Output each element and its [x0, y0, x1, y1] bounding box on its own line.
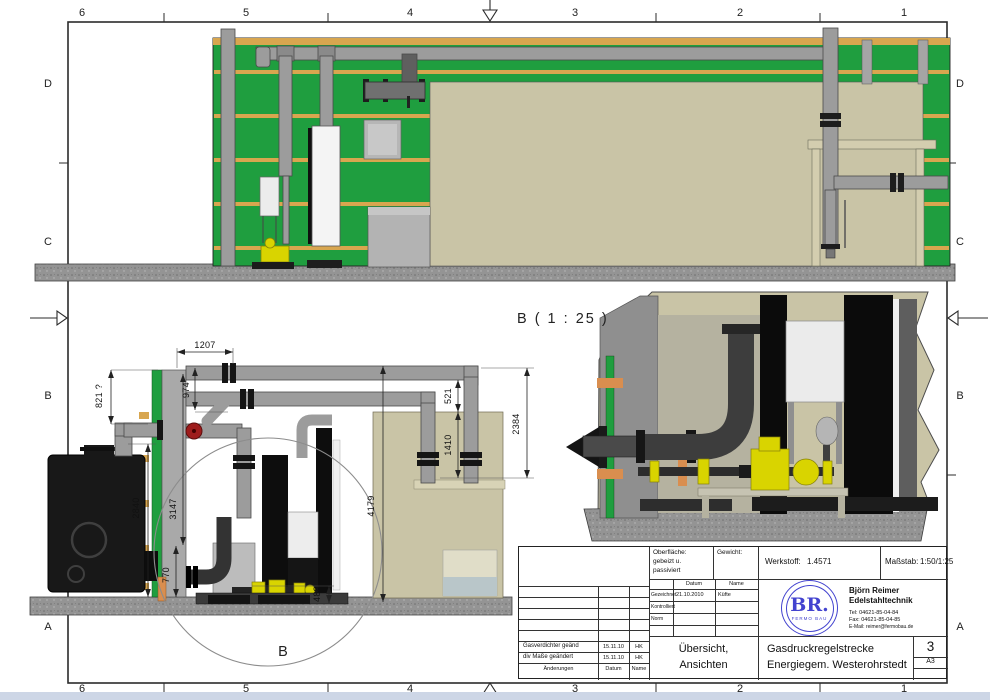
ground-slab: [35, 264, 955, 281]
flanged-valve: [365, 82, 425, 99]
company-name: Edelstahltechnik: [849, 596, 913, 605]
surface-value: passiviert: [653, 567, 680, 574]
ruler-letter: D: [956, 78, 964, 90]
ruler-number: 2: [737, 7, 743, 19]
dimension-label: 2840: [131, 497, 141, 518]
doc-title: Ansichten: [649, 659, 758, 671]
ruler-letter: A: [956, 621, 963, 633]
interior-wall: [430, 82, 923, 266]
company-fax: Fax: 04621-85-04-85: [849, 617, 900, 623]
revision-desc: Gasverdichter geänd: [523, 643, 579, 649]
revision-name: HK: [629, 655, 649, 661]
revision-date: 15.11.10: [598, 644, 629, 650]
gray-box: [368, 207, 430, 267]
wall-cabinet: [312, 126, 340, 246]
sheet-number: 3: [913, 639, 948, 654]
ruler-letter: B: [44, 390, 51, 402]
ruler-number: 5: [243, 7, 249, 19]
dimension-label: 2384: [511, 413, 521, 434]
desktop-edge-strip: [0, 692, 990, 700]
scale-value: 1:50/1:25: [920, 557, 953, 566]
company-tel: Tel: 04621-85-04-84: [849, 610, 898, 616]
control-cabinet: [786, 321, 844, 402]
sign-drawn-date: 21.10.2010: [676, 592, 704, 598]
ruler-number: 1: [901, 7, 907, 19]
material-label: Werkstoff:: [765, 557, 801, 566]
revision-footer: Name: [629, 666, 649, 672]
ruler-number: 4: [407, 7, 413, 19]
title-block: Oberfläche: gebeizt u. passiviert Gewich…: [518, 546, 947, 679]
ruler-number: 6: [79, 7, 85, 19]
dimension-label: 488: [312, 586, 322, 602]
scale-label: Maßstab:: [885, 557, 918, 566]
ruler-letter: A: [44, 621, 51, 633]
surface-label: Oberfläche:: [653, 549, 687, 556]
sign-row-norm: Norm: [651, 616, 663, 622]
detail-view-label: B ( 1 : 25 ): [517, 311, 609, 327]
drawing-sheet: 6 5 4 3 2 1 6 5 4 3 2 1 D C B A D C B A …: [0, 0, 990, 700]
sign-col-date: Datum: [673, 581, 715, 587]
revision-name: HK: [629, 644, 649, 650]
dimension-label: 521: [443, 388, 453, 404]
logo-subtext: FERMO BAU: [792, 616, 828, 621]
dimension-label: 3147: [168, 498, 178, 519]
ruler-letter: D: [44, 78, 52, 90]
revision-footer: Änderungen: [519, 666, 598, 672]
dimension-label: 770: [161, 567, 171, 583]
dimension-label: 1410: [443, 434, 453, 455]
weight-label: Gewicht:: [717, 549, 742, 556]
project-title: Energiegem. Westerohrstedt: [767, 659, 907, 671]
sign-row-drawn: Gezeichnet: [651, 592, 676, 598]
revision-date: 15.11.10: [598, 655, 629, 661]
company-email: E-Mail: reimer@fermobau.de: [849, 624, 913, 630]
gas-tank: [48, 445, 158, 592]
company-name: Björn Reimer: [849, 586, 899, 595]
dimension-label: 4179: [366, 495, 376, 516]
doc-title: Übersicht,: [649, 643, 758, 655]
regulator-skid: [158, 420, 348, 604]
sign-drawn-name: Küfte: [718, 592, 731, 598]
ruler-letter: C: [956, 236, 964, 248]
side-elevation-view: [30, 348, 534, 666]
surface-value: gebeizt u.: [653, 558, 681, 565]
dimension-label: 974: [181, 382, 191, 398]
ruler-letter: C: [44, 236, 52, 248]
ruler-letter: B: [956, 390, 963, 402]
material-value: 1.4571: [807, 557, 831, 566]
dimension-label: 1207: [194, 340, 215, 350]
small-cabinet: [260, 177, 279, 216]
wall-column: [162, 370, 186, 597]
sign-row-checked: Kontrolliert: [651, 604, 675, 610]
revision-desc: div Maße geändert: [523, 654, 573, 660]
detail-circle-letter: B: [278, 644, 290, 660]
dimension-label: 821 ?: [94, 384, 104, 408]
revision-footer: Datum: [598, 666, 629, 672]
company-logo: BR. FERMO BAU: [781, 580, 838, 636]
sign-col-name: Name: [715, 581, 758, 587]
logo-text: BR.: [790, 596, 828, 615]
building-front-view: [35, 28, 955, 281]
detail-view-b: [566, 292, 939, 541]
sheet-format: A3: [913, 658, 948, 665]
project-title: Gasdruckregelstrecke: [767, 643, 874, 655]
ruler-number: 3: [572, 7, 578, 19]
